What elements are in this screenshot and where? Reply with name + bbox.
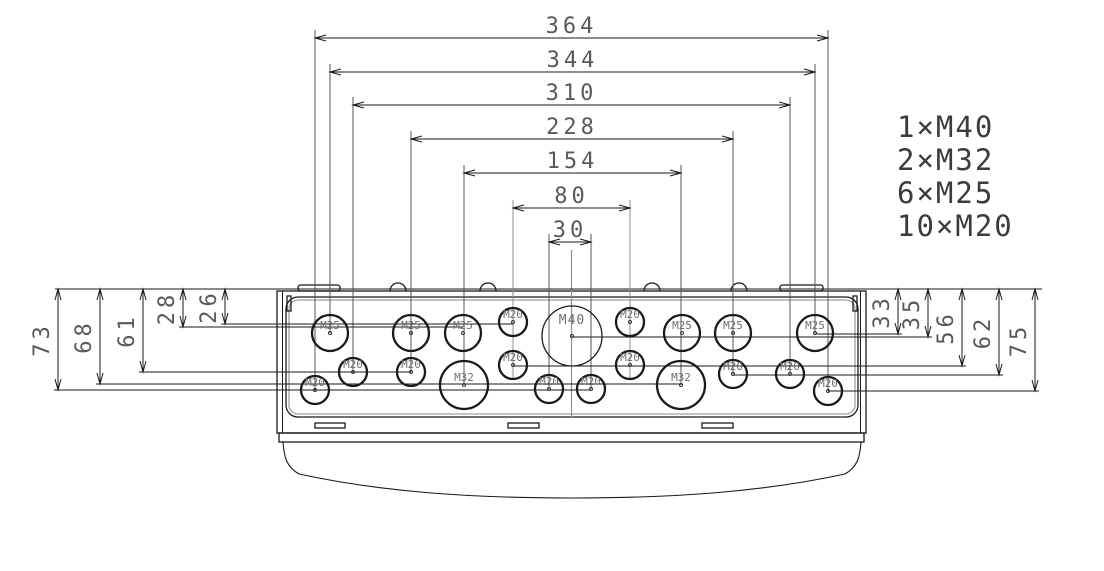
svg-text:M20: M20	[503, 308, 523, 321]
svg-text:75: 75	[1007, 323, 1032, 358]
svg-text:M25: M25	[672, 319, 692, 332]
svg-text:M25: M25	[453, 319, 473, 332]
svg-text:M20: M20	[305, 376, 325, 389]
enclosure-knockout-drawing: 364344310228154803073686128263335566275M…	[0, 0, 1104, 571]
svg-text:30: 30	[553, 218, 588, 243]
svg-text:M20: M20	[539, 375, 559, 388]
svg-text:35: 35	[900, 296, 925, 331]
svg-text:2×M32: 2×M32	[897, 143, 994, 177]
svg-text:M20: M20	[620, 308, 640, 321]
technical-drawing-page: 364344310228154803073686128263335566275M…	[0, 0, 1104, 571]
svg-text:10×M20: 10×M20	[897, 209, 1014, 243]
svg-text:68: 68	[72, 319, 97, 354]
svg-text:M25: M25	[805, 319, 825, 332]
svg-text:M25: M25	[723, 319, 743, 332]
svg-text:364: 364	[546, 14, 598, 39]
svg-text:26: 26	[197, 289, 222, 324]
svg-text:M20: M20	[780, 360, 800, 373]
svg-text:6×M25: 6×M25	[897, 176, 994, 210]
svg-text:61: 61	[115, 313, 140, 348]
svg-text:M40: M40	[559, 313, 585, 328]
svg-text:1×M40: 1×M40	[897, 110, 994, 144]
svg-text:M20: M20	[581, 375, 601, 388]
svg-text:310: 310	[546, 81, 598, 106]
svg-text:M32: M32	[454, 371, 474, 384]
svg-text:62: 62	[971, 315, 996, 350]
svg-text:228: 228	[546, 115, 598, 140]
svg-text:M20: M20	[723, 360, 743, 373]
svg-text:M20: M20	[503, 351, 523, 364]
svg-text:M25: M25	[401, 319, 421, 332]
svg-text:56: 56	[934, 310, 959, 345]
svg-text:154: 154	[547, 149, 599, 174]
svg-text:M20: M20	[343, 358, 363, 371]
svg-text:80: 80	[554, 184, 589, 209]
svg-text:M32: M32	[671, 371, 691, 384]
svg-text:28: 28	[155, 291, 180, 326]
svg-text:M20: M20	[620, 351, 640, 364]
svg-text:73: 73	[30, 322, 55, 357]
svg-text:M25: M25	[320, 319, 340, 332]
svg-text:33: 33	[870, 294, 895, 329]
svg-text:M20: M20	[818, 377, 838, 390]
svg-text:M20: M20	[401, 358, 421, 371]
svg-text:344: 344	[547, 48, 599, 73]
